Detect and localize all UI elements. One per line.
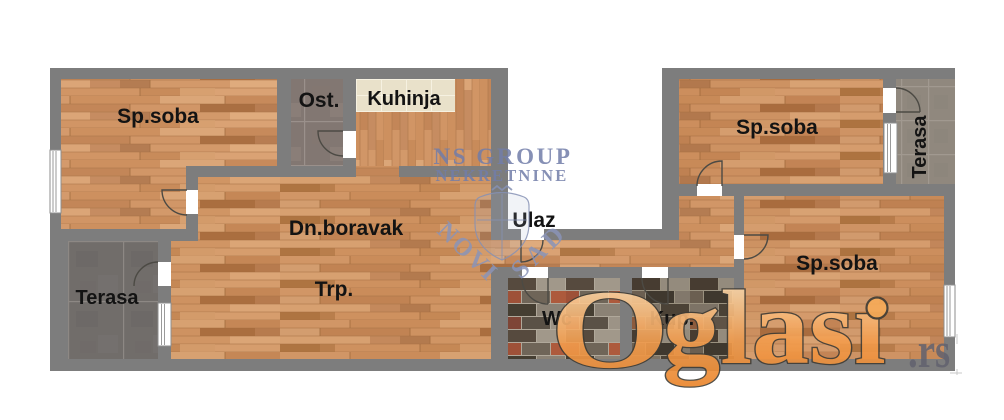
svg-text:Kuhinja: Kuhinja <box>367 88 441 110</box>
svg-text:O: O <box>550 268 670 392</box>
svg-text:Dn.boravak: Dn.boravak <box>289 217 404 240</box>
svg-text:Sp.soba: Sp.soba <box>736 116 818 139</box>
svg-text:Terasa: Terasa <box>75 287 139 309</box>
svg-text:glası: glası <box>663 269 886 386</box>
svg-text:Ost.: Ost. <box>299 89 340 112</box>
svg-text:.rs: .rs <box>908 322 950 378</box>
svg-text:Trp.: Trp. <box>315 278 354 301</box>
svg-text:Sp.soba: Sp.soba <box>117 105 199 128</box>
svg-text:NEKRETNINE: NEKRETNINE <box>436 166 569 185</box>
svg-text:Terasa: Terasa <box>909 115 931 179</box>
